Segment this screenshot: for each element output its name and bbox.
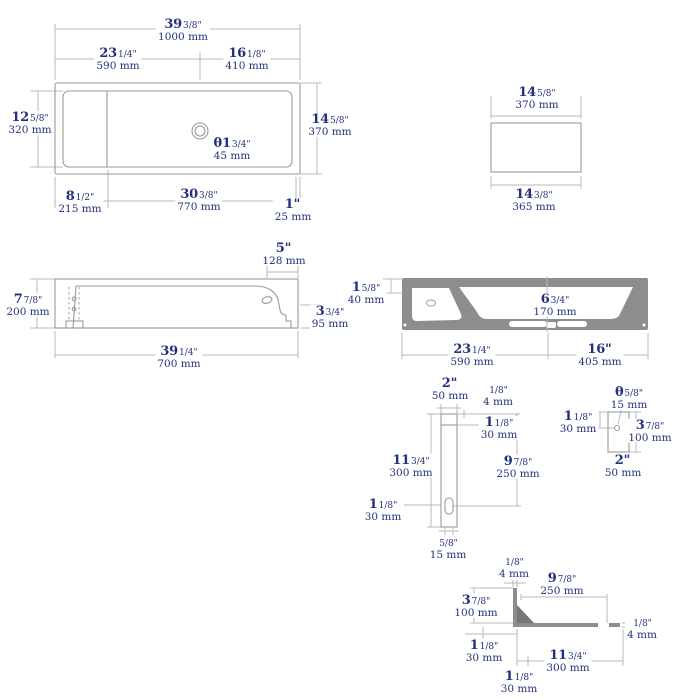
dim-inches-whole: 11 (549, 648, 567, 663)
dim-inches-fraction: 5/8" (624, 389, 643, 399)
dim-inches-whole: 39 (160, 344, 178, 359)
dim-inches-whole: 1 (564, 409, 573, 424)
dim-inches-whole: 3 (462, 593, 471, 608)
dim-inches: 33/4" (312, 305, 349, 319)
dim-label-bracket-top-offset: 11/8"30 mm (479, 416, 520, 440)
dim-inches: 113/4" (389, 454, 432, 468)
dim-label-angle-leg-offset: 11/8"30 mm (464, 639, 505, 663)
dim-inches: 37/8" (628, 419, 671, 433)
dim-inches-fraction: 1/2" (76, 193, 95, 203)
dim-label-topview-right-width: 161/8"410 mm (223, 47, 270, 71)
dim-inches: 11/8" (466, 639, 503, 653)
dim-millimeters: 1000 mm (158, 31, 208, 42)
dim-inches: 97/8" (496, 455, 539, 469)
dim-inches: 231/4" (450, 343, 493, 357)
dim-inches-whole: 39 (164, 17, 182, 32)
dim-inches-whole: 12 (11, 110, 29, 125)
dim-label-frontview-right-height: 33/4"95 mm (310, 305, 351, 329)
dim-inches-whole: 1" (285, 197, 300, 212)
dim-millimeters: 170 mm (533, 306, 576, 317)
dimension-labels-layer: 393/8"1000 mm231/4"590 mm161/8"410 mm125… (0, 0, 677, 700)
dim-inches-whole: 8 (66, 189, 75, 204)
dim-inches-whole: 23 (99, 46, 117, 61)
dim-inches-whole: 16" (587, 342, 611, 357)
dim-millimeters: 128 mm (262, 255, 305, 266)
dim-label-topview-shelf-width: 81/2"215 mm (56, 190, 103, 214)
dim-millimeters: 300 mm (546, 662, 589, 673)
dim-millimeters: 25 mm (275, 211, 312, 222)
dim-inches: 143/8" (512, 188, 555, 202)
dim-millimeters: 200 mm (6, 306, 49, 317)
dim-label-section-right-width: 16"405 mm (576, 343, 623, 367)
dim-inches-fraction: 1/8" (495, 419, 514, 429)
dim-inches-whole: 30 (180, 187, 198, 202)
dim-inches-whole: 3 (316, 304, 325, 319)
dim-label-angle-top-thickness: 1/8"4 mm (497, 555, 531, 579)
dim-millimeters: 250 mm (496, 468, 539, 479)
dim-inches-whole: 1 (505, 669, 514, 684)
dim-inches-fraction: 1/8" (247, 50, 266, 60)
dim-inches-whole: 9 (548, 571, 557, 586)
dimension-drawing: 393/8"1000 mm231/4"590 mm161/8"410 mm125… (0, 0, 677, 700)
dim-inches-fraction: 3/4" (568, 652, 587, 662)
dim-inches-whole: 6 (541, 292, 550, 307)
dim-inches-fraction: 1/4" (179, 348, 198, 358)
dim-inches: 161/8" (225, 47, 268, 61)
dim-inches: θ13/4" (214, 137, 251, 151)
dim-inches: 391/4" (157, 345, 200, 359)
dim-millimeters: 300 mm (389, 467, 432, 478)
dim-inches-fraction: 1/8" (379, 501, 398, 511)
dim-millimeters: 45 mm (214, 150, 251, 161)
dim-millimeters: 4 mm (499, 568, 529, 579)
dim-inches-fraction: 5/8" (362, 284, 381, 294)
dim-inches-whole: 14 (518, 85, 536, 100)
dim-inches: 125/8" (8, 111, 51, 125)
dim-inches-whole: 2" (615, 453, 630, 468)
dim-inches-whole: θ1 (214, 136, 231, 151)
dim-inches-whole: 1 (470, 638, 479, 653)
dim-inches: 1/8" (499, 555, 529, 569)
dim-inches: 11/8" (501, 670, 538, 684)
dim-label-plate-width: 2"50 mm (603, 454, 644, 478)
dim-inches-fraction: 1/8" (574, 413, 593, 423)
dim-label-frontview-top-right: 5"128 mm (260, 242, 307, 266)
dim-inches-fraction: 1/8" (515, 673, 534, 683)
dim-label-topview-left-width: 231/4"590 mm (94, 47, 141, 71)
dim-millimeters: 40 mm (348, 294, 385, 305)
dim-inches-fraction: 5/8" (30, 114, 49, 124)
dim-inches-fraction: 1/8" (505, 558, 524, 568)
dim-millimeters: 4 mm (483, 396, 513, 407)
dim-millimeters: 770 mm (177, 201, 220, 212)
dim-millimeters: 370 mm (515, 99, 558, 110)
dim-label-bracket-slot-left: 11/8"30 mm (363, 498, 404, 522)
dim-millimeters: 95 mm (312, 318, 349, 329)
dim-millimeters: 215 mm (58, 203, 101, 214)
dim-label-plate-hole-diameter: θ5/8"15 mm (609, 386, 650, 410)
dim-label-sideview-top-width: 145/8"370 mm (513, 86, 560, 110)
dim-inches-whole: 14 (311, 112, 329, 127)
dim-label-section-left-width: 231/4"590 mm (448, 343, 495, 367)
dim-inches-fraction: 1/8" (480, 642, 499, 652)
dim-label-plate-hole-offset: 11/8"30 mm (558, 410, 599, 434)
dim-millimeters: 30 mm (481, 429, 518, 440)
dim-inches-whole: 14 (515, 187, 533, 202)
dim-label-section-basin-depth: 63/4"170 mm (531, 293, 578, 317)
dim-inches-fraction: 5/8" (537, 89, 556, 99)
dim-inches: 145/8" (308, 113, 351, 127)
dim-inches-whole: 16 (228, 46, 246, 61)
dim-label-topview-edge: 1"25 mm (273, 198, 314, 222)
dim-millimeters: 590 mm (450, 356, 493, 367)
dim-inches: 77/8" (6, 293, 49, 307)
dim-label-bracket-slot-width: 5/8"15 mm (428, 536, 469, 560)
dim-label-plate-height: 37/8"100 mm (626, 419, 673, 443)
dim-inches-fraction: 3/8" (183, 21, 202, 31)
dim-inches-fraction: 5/8" (439, 539, 458, 549)
dim-inches-whole: 9 (504, 454, 513, 469)
dim-inches: 63/4" (533, 293, 576, 307)
dim-millimeters: 50 mm (432, 390, 469, 401)
dim-inches-fraction: 7/8" (646, 422, 665, 432)
dim-millimeters: 30 mm (501, 683, 538, 694)
dim-label-bracket-slot-center: 97/8"250 mm (494, 455, 541, 479)
dim-inches: θ5/8" (611, 386, 648, 400)
dim-label-sideview-bottom-width: 143/8"365 mm (510, 188, 557, 212)
dim-label-topview-inner-depth: 125/8"320 mm (6, 111, 53, 135)
dim-millimeters: 30 mm (365, 511, 402, 522)
dim-inches: 393/8" (158, 18, 208, 32)
dim-inches: 11/8" (560, 410, 597, 424)
dim-inches-whole: 2" (442, 376, 457, 391)
dim-label-topview-overall-width: 393/8"1000 mm (156, 18, 210, 42)
dim-inches: 37/8" (454, 594, 497, 608)
dim-label-angle-right-thickness: 1/8"4 mm (625, 616, 659, 640)
dim-label-frontview-height: 77/8"200 mm (4, 293, 51, 317)
dim-inches-whole: 1 (352, 280, 361, 295)
dim-millimeters: 100 mm (454, 607, 497, 618)
dim-inches-fraction: 7/8" (514, 458, 533, 468)
dim-inches: 1" (275, 198, 312, 212)
dim-inches-whole: 1 (369, 497, 378, 512)
dim-millimeters: 365 mm (512, 201, 555, 212)
dim-label-angle-arm-top: 97/8"250 mm (538, 572, 585, 596)
dim-inches: 16" (578, 343, 621, 357)
dim-millimeters: 370 mm (308, 126, 351, 137)
dim-label-bracket-height: 113/4"300 mm (387, 454, 434, 478)
dim-millimeters: 15 mm (430, 549, 467, 560)
dim-label-section-rim-height: 15/8"40 mm (346, 281, 387, 305)
dim-inches: 303/8" (177, 188, 220, 202)
dim-label-bracket-top-width: 2"50 mm (430, 377, 471, 401)
dim-inches-whole: θ (615, 385, 623, 400)
dim-label-topview-drain-diameter: θ13/4"45 mm (212, 137, 253, 161)
dim-inches-whole: 7 (14, 292, 23, 307)
dim-millimeters: 250 mm (540, 585, 583, 596)
dim-inches: 113/4" (546, 649, 589, 663)
dim-label-angle-arm-bottom: 113/4"300 mm (544, 649, 591, 673)
dim-inches: 2" (605, 454, 642, 468)
dim-millimeters: 320 mm (8, 124, 51, 135)
dim-inches: 231/4" (96, 47, 139, 61)
dim-inches: 1/8" (483, 383, 513, 397)
dim-millimeters: 700 mm (157, 358, 200, 369)
dim-inches: 97/8" (540, 572, 583, 586)
dim-inches-fraction: 3/4" (411, 457, 430, 467)
dim-millimeters: 405 mm (578, 356, 621, 367)
dim-inches-fraction: 3/4" (326, 308, 345, 318)
dim-inches-whole: 23 (453, 342, 471, 357)
dim-millimeters: 15 mm (611, 399, 648, 410)
dim-inches-fraction: 7/8" (24, 296, 43, 306)
dim-inches: 1/8" (627, 616, 657, 630)
dim-inches-whole: 11 (392, 453, 410, 468)
dim-inches-fraction: 3/8" (534, 191, 553, 201)
dim-inches: 5/8" (430, 536, 467, 550)
dim-inches: 81/2" (58, 190, 101, 204)
dim-label-frontview-width: 391/4"700 mm (155, 345, 202, 369)
dim-inches-fraction: 1/8" (633, 619, 652, 629)
dim-inches-fraction: 7/8" (558, 575, 577, 585)
dim-inches: 2" (432, 377, 469, 391)
dim-inches-whole: 3 (636, 418, 645, 433)
dim-inches-fraction: 3/8" (199, 191, 218, 201)
dim-millimeters: 30 mm (466, 652, 503, 663)
dim-label-topview-basin-width: 303/8"770 mm (175, 188, 222, 212)
dim-inches-fraction: 5/8" (330, 116, 349, 126)
dim-inches: 11/8" (481, 416, 518, 430)
dim-label-angle-leg-height: 37/8"100 mm (452, 594, 499, 618)
dim-millimeters: 590 mm (96, 60, 139, 71)
dim-label-angle-bottom-offset: 11/8"30 mm (499, 670, 540, 694)
dim-inches-fraction: 1/4" (472, 346, 491, 356)
dim-inches-fraction: 3/4" (551, 296, 570, 306)
dim-millimeters: 30 mm (560, 423, 597, 434)
dim-label-topview-outer-depth: 145/8"370 mm (306, 113, 353, 137)
dim-millimeters: 4 mm (627, 629, 657, 640)
dim-inches-fraction: 3/4" (232, 140, 251, 150)
dim-inches-fraction: 7/8" (472, 597, 491, 607)
dim-inches-whole: 1 (485, 415, 494, 430)
dim-millimeters: 50 mm (605, 467, 642, 478)
dim-millimeters: 100 mm (628, 432, 671, 443)
dim-label-bracket-top-lip: 1/8"4 mm (481, 383, 515, 407)
dim-inches: 5" (262, 242, 305, 256)
dim-millimeters: 410 mm (225, 60, 268, 71)
dim-inches: 11/8" (365, 498, 402, 512)
dim-inches-fraction: 1/4" (118, 50, 137, 60)
dim-inches-whole: 5" (276, 241, 291, 256)
dim-inches: 145/8" (515, 86, 558, 100)
dim-inches: 15/8" (348, 281, 385, 295)
dim-inches-fraction: 1/8" (489, 386, 508, 396)
